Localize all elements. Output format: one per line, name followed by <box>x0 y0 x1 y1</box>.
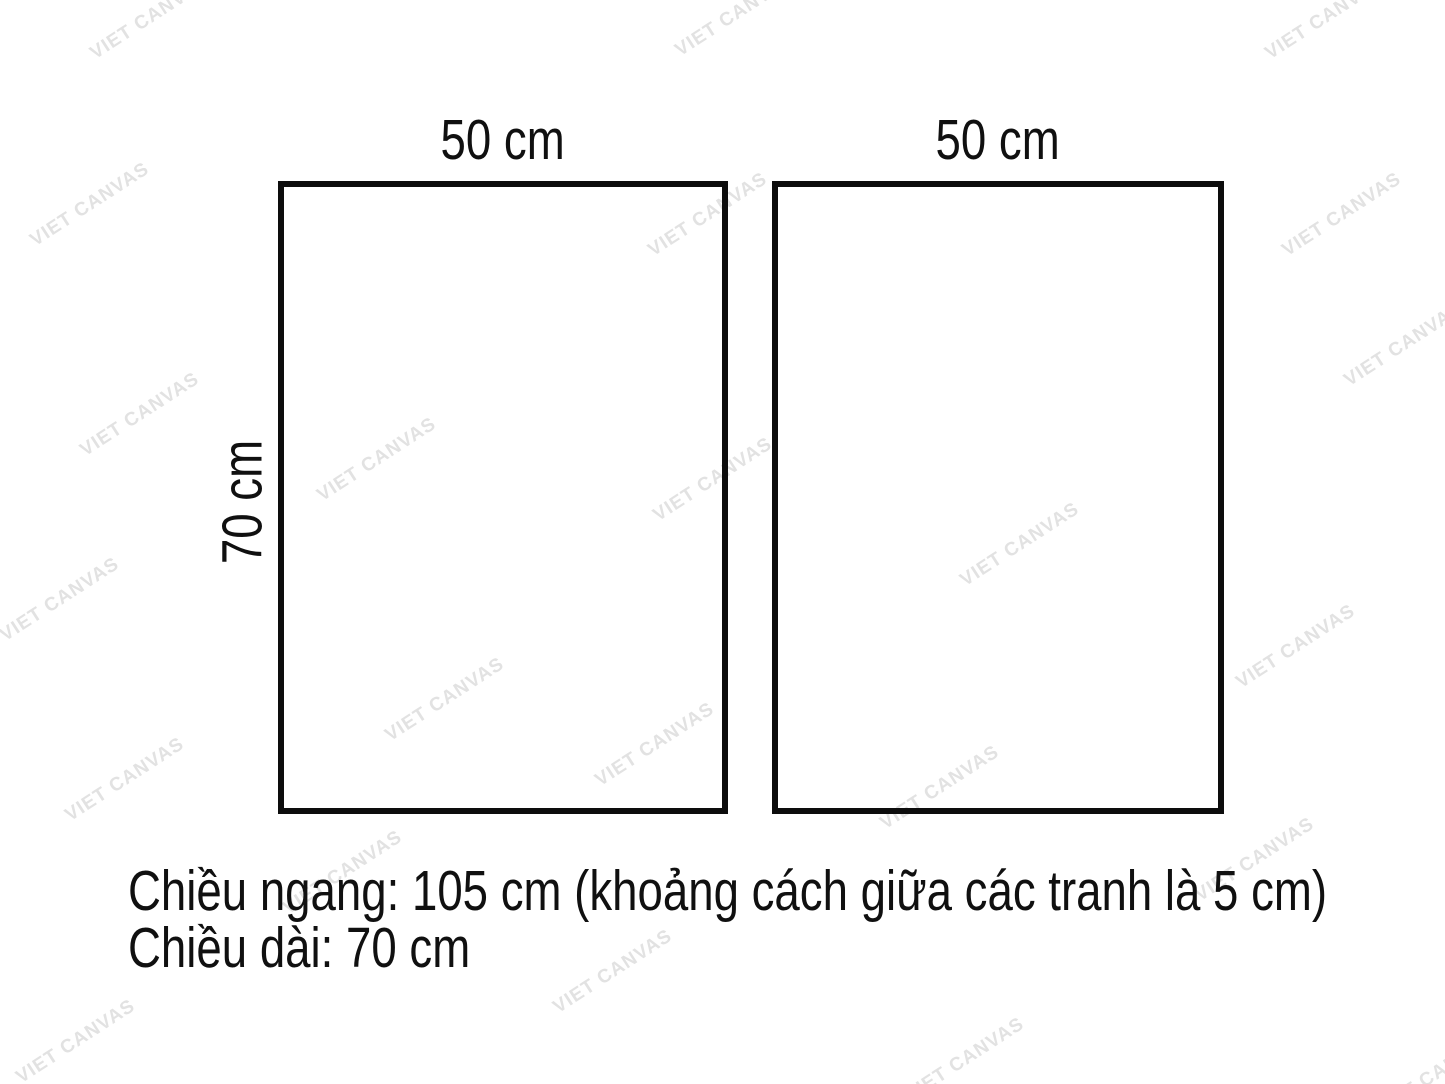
watermark-text: VIET CANVAS <box>1340 298 1445 391</box>
watermark-text: VIET CANVAS <box>671 0 798 62</box>
panel-height-label: 70 cm <box>215 440 272 564</box>
dimension-diagram: VIET CANVASVIET CANVASVIET CANVASVIET CA… <box>0 0 1445 1084</box>
watermark-text: VIET CANVAS <box>1232 600 1359 693</box>
watermark-text: VIET CANVAS <box>1278 168 1405 261</box>
right-panel-width-value: 50 cm <box>936 112 1060 169</box>
right-canvas-panel <box>772 181 1224 814</box>
watermark-text: VIET CANVAS <box>86 0 213 65</box>
watermark-text: VIET CANVAS <box>1371 1028 1445 1084</box>
watermark-text: VIET CANVAS <box>0 553 124 646</box>
watermark-text: VIET CANVAS <box>1261 0 1388 65</box>
watermark-text: VIET CANVAS <box>61 733 188 826</box>
left-canvas-panel <box>278 181 728 814</box>
dimensions-caption: Chiều ngang: 105 cm (khoảng cách giữa cá… <box>128 863 1445 977</box>
watermark-text: VIET CANVAS <box>76 368 203 461</box>
watermark-text: VIET CANVAS <box>12 995 139 1084</box>
watermark-text: VIET CANVAS <box>26 158 153 251</box>
caption-horizontal-dimension: Chiều ngang: 105 cm (khoảng cách giữa cá… <box>128 863 1445 920</box>
right-panel-width-label: 50 cm <box>772 112 1224 177</box>
caption-vertical-dimension: Chiều dài: 70 cm <box>128 920 1445 977</box>
left-panel-width-label: 50 cm <box>278 112 728 177</box>
left-panel-width-value: 50 cm <box>441 112 565 169</box>
watermark-text: VIET CANVAS <box>901 1013 1028 1084</box>
